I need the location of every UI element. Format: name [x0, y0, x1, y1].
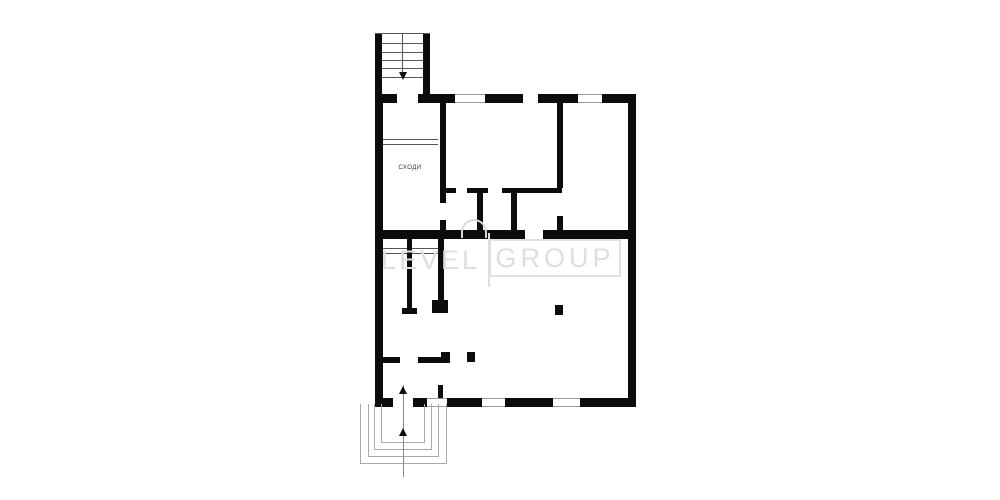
wall-segment	[418, 94, 455, 103]
wall-segment	[375, 94, 397, 103]
watermark-level-text: LEVEL	[381, 247, 480, 274]
column	[555, 305, 563, 315]
wall-segment	[447, 398, 482, 407]
partition-wall	[557, 216, 563, 231]
mid-wall-segment	[383, 230, 525, 239]
partition-wall	[446, 188, 456, 193]
exterior-wall-right	[628, 94, 636, 407]
window	[553, 398, 580, 407]
floor-plan: СХОДИ LEVEL GROUP	[0, 0, 1000, 500]
stair-shaft-wall	[375, 33, 382, 94]
entrance-arrow-icon	[399, 386, 407, 394]
arch-icon	[461, 219, 487, 238]
partition-wall	[418, 357, 443, 363]
stair-direction-line	[402, 34, 403, 73]
wall-segment	[485, 94, 523, 103]
column	[441, 352, 450, 363]
floor-plan-canvas: СХОДИ LEVEL GROUP	[0, 0, 1000, 500]
column	[467, 352, 475, 362]
window	[578, 94, 602, 103]
partition-wall	[432, 300, 448, 313]
window	[455, 94, 485, 103]
partition-wall	[402, 308, 417, 314]
room-label-stairs: СХОДИ	[390, 165, 430, 171]
mid-wall-segment	[543, 230, 628, 239]
window	[482, 398, 505, 407]
wall-segment	[538, 94, 578, 103]
partition-wall	[440, 220, 446, 231]
landing-line	[383, 144, 438, 145]
stair-shaft-wall	[423, 33, 430, 94]
watermark-group-box: GROUP	[489, 239, 621, 277]
partition-wall	[557, 103, 563, 188]
wall-segment	[580, 398, 636, 407]
landing-line	[383, 139, 438, 140]
wall-segment	[602, 94, 636, 103]
partition-wall	[511, 193, 517, 231]
wall-segment	[505, 398, 553, 407]
stair-direction-arrow-icon	[399, 72, 407, 80]
door-jamb	[438, 385, 443, 398]
watermark-group-text: GROUP	[495, 245, 614, 272]
entrance-arrow-icon	[399, 428, 407, 436]
partition-wall	[383, 357, 400, 363]
